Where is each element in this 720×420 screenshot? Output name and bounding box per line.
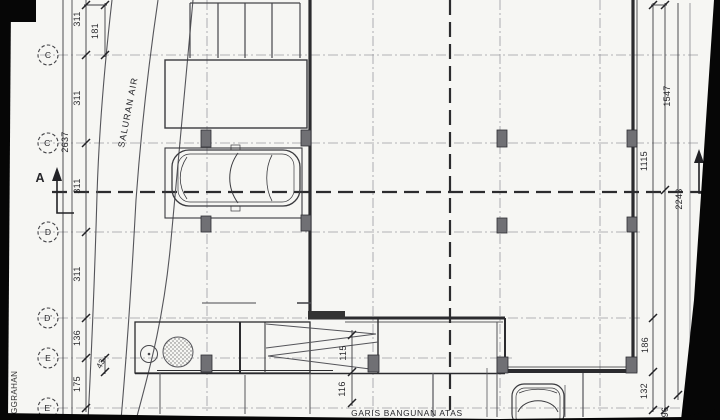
scan-edge-right: [681, 0, 720, 420]
dim-2637: 2637: [60, 131, 70, 152]
floor-plan-sheet: C C' D D' E E' 311 181 311 2637 311 311 …: [0, 0, 720, 420]
ramp-arrows: [266, 324, 378, 370]
grid-label-d2: D': [44, 313, 52, 323]
scan-edge-top-left-corner: [0, 0, 36, 22]
scan-edge-left: [0, 0, 11, 420]
dim-186: 186: [640, 337, 650, 353]
dim-96: 96: [660, 407, 670, 418]
walls: [135, 0, 637, 374]
grid-lines: [40, 0, 700, 414]
room-outlines: [165, 60, 307, 218]
car-symbol-carport: [172, 145, 300, 211]
grid-label-c2: C': [44, 138, 52, 148]
dim-116: 116: [337, 381, 347, 396]
dim-311-cc: 311: [72, 90, 82, 105]
garis-bangunan-atas-label: GARIS BANGUNAN ATAS: [351, 408, 463, 418]
grid-label-c: C: [45, 50, 51, 60]
floor-plan-canvas: C C' D D' E E' 311 181 311 2637 311 311 …: [0, 0, 720, 420]
tree-symbol: [163, 337, 193, 367]
columns: [201, 130, 637, 373]
grid-label-d: D: [45, 227, 51, 237]
dimension-labels-left: 311 181 311 2637 311 311 136 43 175: [60, 11, 107, 392]
grid-label-e: E: [45, 353, 51, 363]
section-a-label: A: [35, 171, 44, 185]
top-steps: [190, 3, 300, 58]
planter-symbol: [141, 346, 158, 363]
dim-181: 181: [90, 23, 100, 39]
dim-132: 132: [639, 383, 649, 399]
saluran-air-label: SALURAN AIR: [116, 76, 139, 148]
grid-label-e2: E': [44, 403, 52, 413]
dim-311-top: 311: [72, 11, 82, 26]
dim-1547: 1547: [662, 85, 672, 106]
dim-311-dd: 311: [72, 266, 82, 281]
section-line-and-building-limit: [52, 0, 712, 410]
dim-136: 136: [72, 330, 82, 346]
dimension-labels-right: 1547 1115 2243 186 132 96: [639, 85, 684, 417]
scan-edges: [0, 0, 720, 420]
grid-bubble-labels: C C' D D' E E': [44, 50, 52, 413]
dim-1115: 1115: [639, 151, 649, 171]
dim-2243: 2243: [674, 188, 684, 209]
dim-115: 115: [338, 345, 348, 360]
dim-175: 175: [72, 376, 82, 392]
dim-311-cd: 311: [72, 178, 82, 193]
dimension-labels-middle: 115 116: [337, 345, 348, 396]
car-symbol-garage: [512, 384, 564, 420]
left-margin-text: GGRAHAN: [10, 371, 19, 414]
